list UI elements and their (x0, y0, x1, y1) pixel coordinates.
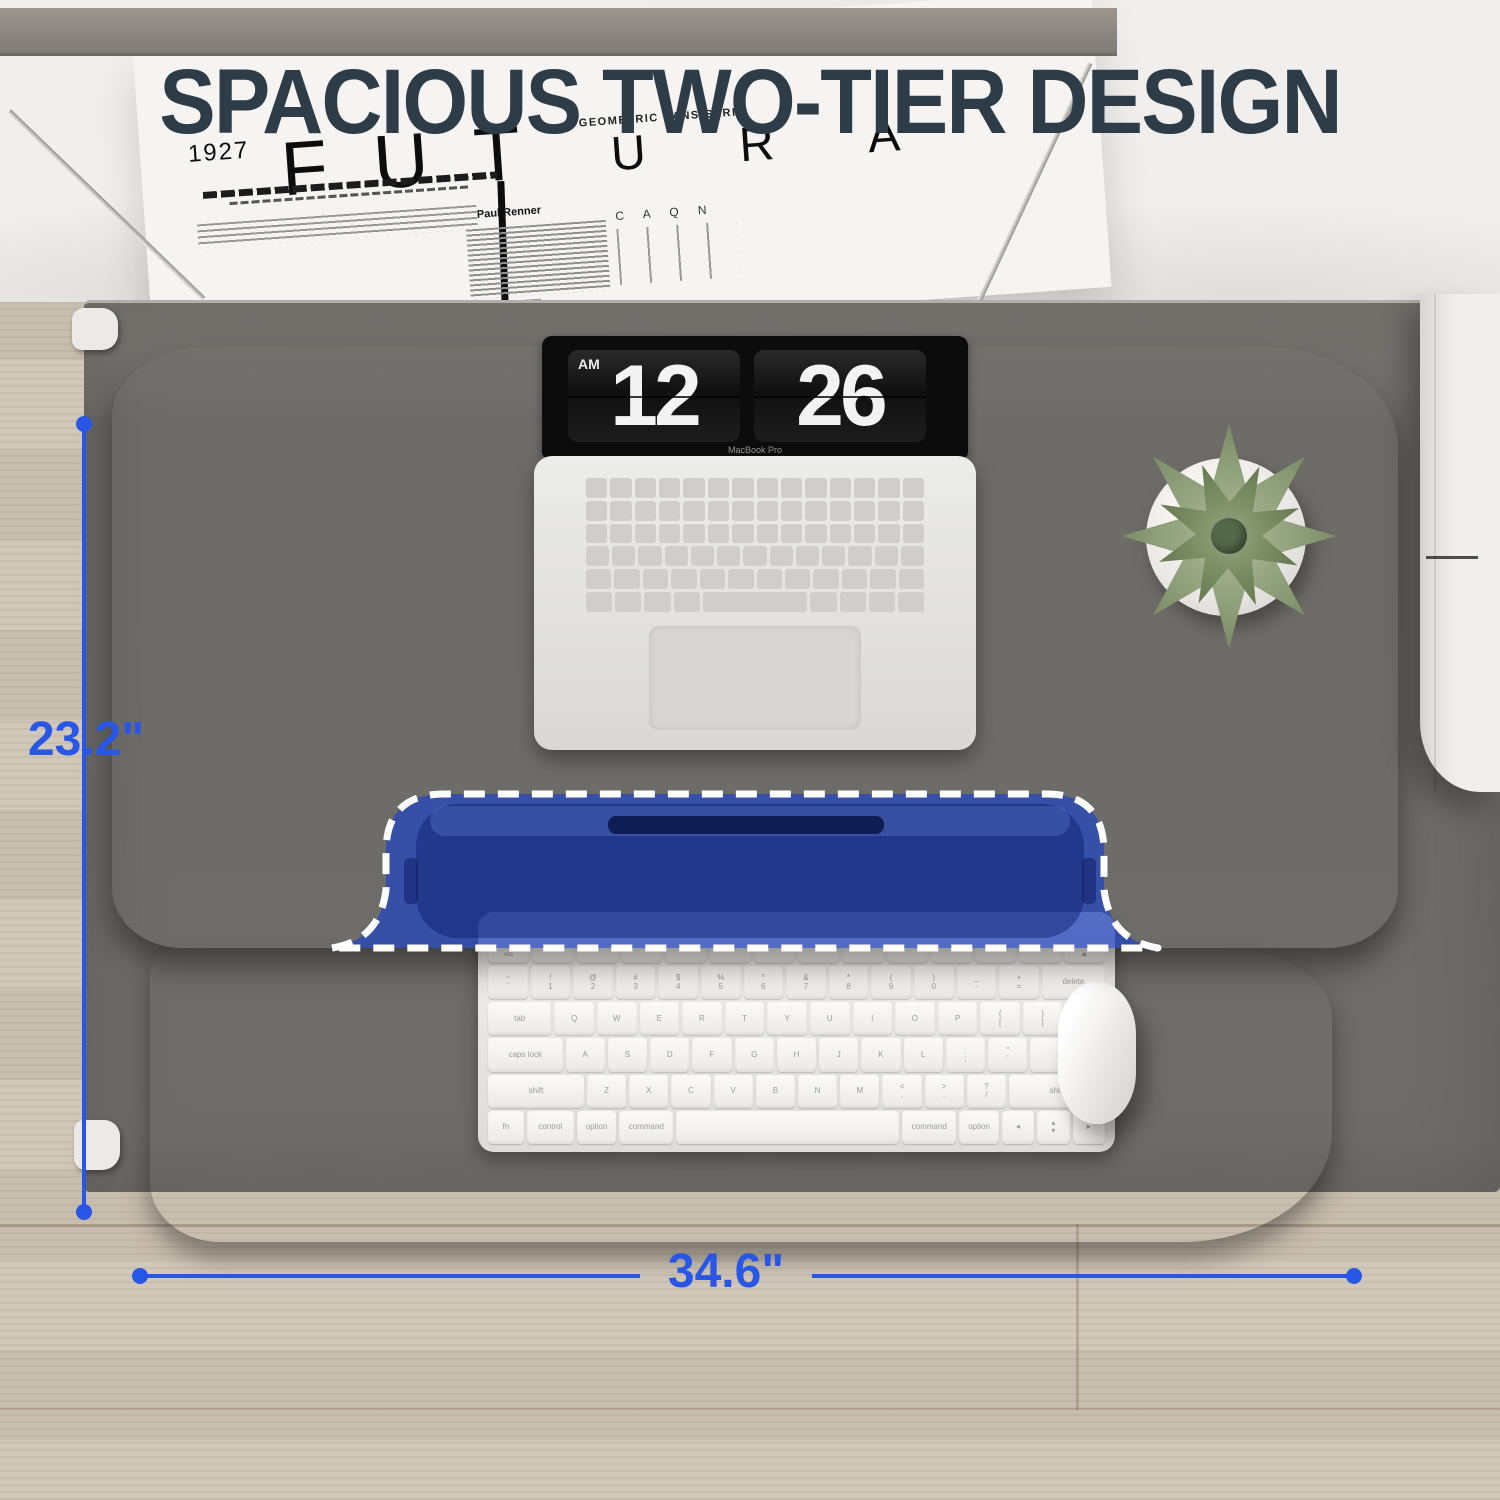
laptop-key (732, 501, 753, 521)
laptop-key (805, 501, 826, 521)
keyboard-key: G (735, 1038, 774, 1071)
keyboard-key: $ 4 (658, 966, 698, 999)
laptop-key (586, 592, 612, 612)
laptop-key (586, 524, 607, 544)
keyboard-key: A (566, 1038, 605, 1071)
keyboard-key: I (853, 1002, 893, 1035)
laptop-key (610, 501, 631, 521)
laptop-screen: AM 12 26 MacBook Pro (542, 336, 968, 458)
keyboard-key: + = (999, 966, 1039, 999)
keyboard-rows: esc⏏~ `! 1@ 2# 3$ 4% 5^ 6& 7* 8( 9) 0_ -… (488, 948, 1105, 1144)
keyboard-key: ? / (967, 1075, 1006, 1108)
slot-side-tab (404, 858, 418, 904)
laptop-key (586, 501, 607, 521)
laptop-key (781, 478, 802, 498)
laptop-key (732, 478, 753, 498)
tablet-slot-highlight (320, 772, 1180, 956)
laptop-key (732, 524, 753, 544)
keyboard-key: ~ ` (488, 966, 528, 999)
keyboard-key: { [ (980, 1002, 1020, 1035)
laptop-key (635, 524, 656, 544)
laptop-key (614, 569, 639, 589)
height-adjust-handle (72, 308, 118, 350)
laptop-key (586, 546, 609, 566)
keyboard-key: @ 2 (573, 966, 613, 999)
laptop-key (854, 478, 875, 498)
keyboard-key: caps lock (488, 1038, 563, 1071)
mouse (1058, 982, 1136, 1124)
laptop-key (728, 569, 753, 589)
dimension-endpoint-dot (132, 1268, 148, 1284)
keyboard-key: control (527, 1111, 574, 1144)
laptop-key-row (586, 592, 924, 612)
laptop-key-row (586, 478, 924, 498)
laptop-key (785, 569, 810, 589)
laptop-key (717, 546, 740, 566)
keyboard-key: tab (488, 1002, 551, 1035)
laptop-keyboard (586, 478, 924, 612)
flip-clock-minutes: 26 (754, 350, 926, 442)
dimension-endpoint-dot (76, 416, 92, 432)
poster-paragraph-lines (466, 220, 611, 300)
laptop-key (643, 569, 668, 589)
laptop-key (848, 546, 871, 566)
width-dimension-line (140, 1274, 640, 1278)
laptop-key (708, 478, 729, 498)
laptop-key (854, 501, 875, 521)
dimension-endpoint-dot (76, 1204, 92, 1220)
laptop-key (878, 478, 899, 498)
keyboard-key: C (671, 1075, 710, 1108)
keyboard-key: command (619, 1111, 673, 1144)
laptop-key (830, 501, 851, 521)
shelf-edge-band (0, 8, 1117, 56)
laptop-key (700, 569, 725, 589)
keyboard-key: F (692, 1038, 731, 1071)
clock-meridiem: AM (578, 356, 600, 372)
laptop-key (903, 478, 924, 498)
laptop-key (830, 524, 851, 544)
depth-dimension-line (82, 423, 86, 1213)
laptop-key (644, 592, 670, 612)
laptop-key (870, 569, 895, 589)
keyboard-key: % 5 (701, 966, 741, 999)
keyboard-row: caps lockASDFGHJKL: ;" 'return (488, 1038, 1105, 1071)
keyboard-key: } ] (1023, 1002, 1063, 1035)
laptop-key (665, 546, 688, 566)
keyboard-key: ◂ (1002, 1111, 1034, 1144)
slot-side-tab (1082, 858, 1096, 904)
laptop-key (830, 478, 851, 498)
keyboard-key: < , (882, 1075, 921, 1108)
laptop-key (757, 478, 778, 498)
laptop-key (796, 546, 819, 566)
keyboard-key: ▴ ▾ (1037, 1111, 1069, 1144)
laptop-key (610, 478, 631, 498)
keyboard-row: fncontroloptioncommandcommandoption◂▴ ▾▸ (488, 1111, 1105, 1144)
dimension-endpoint-dot (1346, 1268, 1362, 1284)
depth-dimension-label: 23.2" (8, 716, 164, 764)
laptop-brand-label: MacBook Pro (542, 445, 968, 455)
width-dimension-line (812, 1274, 1352, 1278)
keyboard-key: option (959, 1111, 999, 1144)
laptop-key (822, 546, 845, 566)
keyboard-key: P (938, 1002, 978, 1035)
keyboard-key: V (714, 1075, 753, 1108)
poster-text-columns (616, 221, 740, 285)
keyboard-key: " ' (988, 1038, 1027, 1071)
laptop-key (586, 569, 611, 589)
keyboard-key: ( 9 (871, 966, 911, 999)
laptop-key (903, 524, 924, 544)
keyboard-key: E (640, 1002, 680, 1035)
keyboard-key: > . (925, 1075, 964, 1108)
keyboard-key: fn (488, 1111, 524, 1144)
poster-specimen-letters: C A Q N (615, 202, 715, 223)
plant-core (1211, 518, 1247, 554)
laptop-key (683, 501, 704, 521)
keyboard-key: ! 1 (531, 966, 571, 999)
keyboard-key: command (902, 1111, 956, 1144)
laptop-key (610, 524, 631, 544)
height-adjust-handle (74, 1120, 120, 1170)
keyboard-key (676, 1111, 899, 1144)
laptop-key (898, 592, 924, 612)
laptop-key-row (586, 569, 924, 589)
keyboard-key: Z (587, 1075, 626, 1108)
laptop-key (683, 524, 704, 544)
keyboard-key: T (725, 1002, 765, 1035)
keyboard-key: & 7 (786, 966, 826, 999)
keyboard-key: K (861, 1038, 900, 1071)
laptop-key (743, 546, 766, 566)
keyboard-key: H (777, 1038, 816, 1071)
keyboard-key: S (608, 1038, 647, 1071)
keyboard-key: * 8 (829, 966, 869, 999)
laptop-key (757, 524, 778, 544)
laptop-key (810, 592, 836, 612)
laptop-key (805, 478, 826, 498)
laptop-key (840, 592, 866, 612)
laptop-key (635, 478, 656, 498)
laptop-key (708, 501, 729, 521)
laptop-key (899, 569, 924, 589)
laptop-key (878, 524, 899, 544)
poster-paragraph-lines (197, 205, 478, 248)
laptop-key (659, 478, 680, 498)
laptop-key (869, 592, 895, 612)
keyboard-key: ^ 6 (744, 966, 784, 999)
keyboard-row: ~ `! 1@ 2# 3$ 4% 5^ 6& 7* 8( 9) 0_ -+ =d… (488, 966, 1105, 999)
laptop-trackpad (649, 626, 861, 730)
laptop-key (674, 592, 700, 612)
keyboard-key: N (798, 1075, 837, 1108)
laptop-key (671, 569, 696, 589)
laptop-key-row (586, 524, 924, 544)
laptop-key (683, 478, 704, 498)
succulent-plant (1122, 424, 1336, 648)
keyboard-key: : ; (946, 1038, 985, 1071)
keyboard-key: W (597, 1002, 637, 1035)
laptop-key (615, 592, 641, 612)
keyboard-key: B (756, 1075, 795, 1108)
width-dimension-label: 34.6" (640, 1248, 812, 1296)
laptop-key (659, 524, 680, 544)
floor-plank-seam (0, 1408, 1500, 1410)
keyboard-key: O (895, 1002, 935, 1035)
laptop-key (612, 546, 635, 566)
keyboard-key: J (819, 1038, 858, 1071)
laptop-key (903, 501, 924, 521)
floor-plank-seam (1076, 1224, 1079, 1410)
laptop-key (708, 524, 729, 544)
keyboard-row: tabQWERTYUIOP{ [} ]| \ (488, 1002, 1105, 1035)
laptop-key (842, 569, 867, 589)
keyboard-key: ) 0 (914, 966, 954, 999)
keyboard-key: Y (767, 1002, 807, 1035)
laptop-key (691, 546, 714, 566)
laptop-key-row (586, 546, 924, 566)
laptop-space-key (703, 592, 808, 612)
keyboard-key: L (904, 1038, 943, 1071)
laptop-key (875, 546, 898, 566)
laptop-body (534, 456, 976, 750)
keyboard-key: X (629, 1075, 668, 1108)
keyboard-key: # 3 (616, 966, 656, 999)
page-title: SPACIOUS TWO-TIER DESIGN (60, 56, 1440, 148)
laptop-key (770, 546, 793, 566)
keyboard-key: M (840, 1075, 879, 1108)
poster-designer-name: Paul Renner (477, 204, 542, 220)
keyboard-key: D (650, 1038, 689, 1071)
laptop-key (854, 524, 875, 544)
side-cabinet (1420, 294, 1500, 792)
laptop-key (635, 501, 656, 521)
keyboard-key: _ - (957, 966, 997, 999)
laptop-key (659, 501, 680, 521)
keyboard-key: U (810, 1002, 850, 1035)
keyboard-key: Q (554, 1002, 594, 1035)
laptop-key (638, 546, 661, 566)
laptop-key (901, 546, 924, 566)
laptop-key-row (586, 501, 924, 521)
laptop: AM 12 26 MacBook Pro (534, 336, 976, 750)
keyboard-key: shift (488, 1075, 584, 1108)
laptop-key (757, 501, 778, 521)
keyboard-row: shiftZXCVBNM< ,> .? /shift (488, 1075, 1105, 1108)
keyboard-key: R (682, 1002, 722, 1035)
cabinet-edge-groove (1434, 294, 1436, 792)
laptop-key (781, 501, 802, 521)
laptop-key (586, 478, 607, 498)
slot-groove (608, 816, 884, 834)
product-photo-scene: 1927 FUT URA GEOMETRIC SANS-SERIF Paul R… (0, 0, 1500, 1500)
laptop-key (813, 569, 838, 589)
keyboard-key: option (577, 1111, 617, 1144)
laptop-key (805, 524, 826, 544)
laptop-key (781, 524, 802, 544)
laptop-key (757, 569, 782, 589)
laptop-key (878, 501, 899, 521)
